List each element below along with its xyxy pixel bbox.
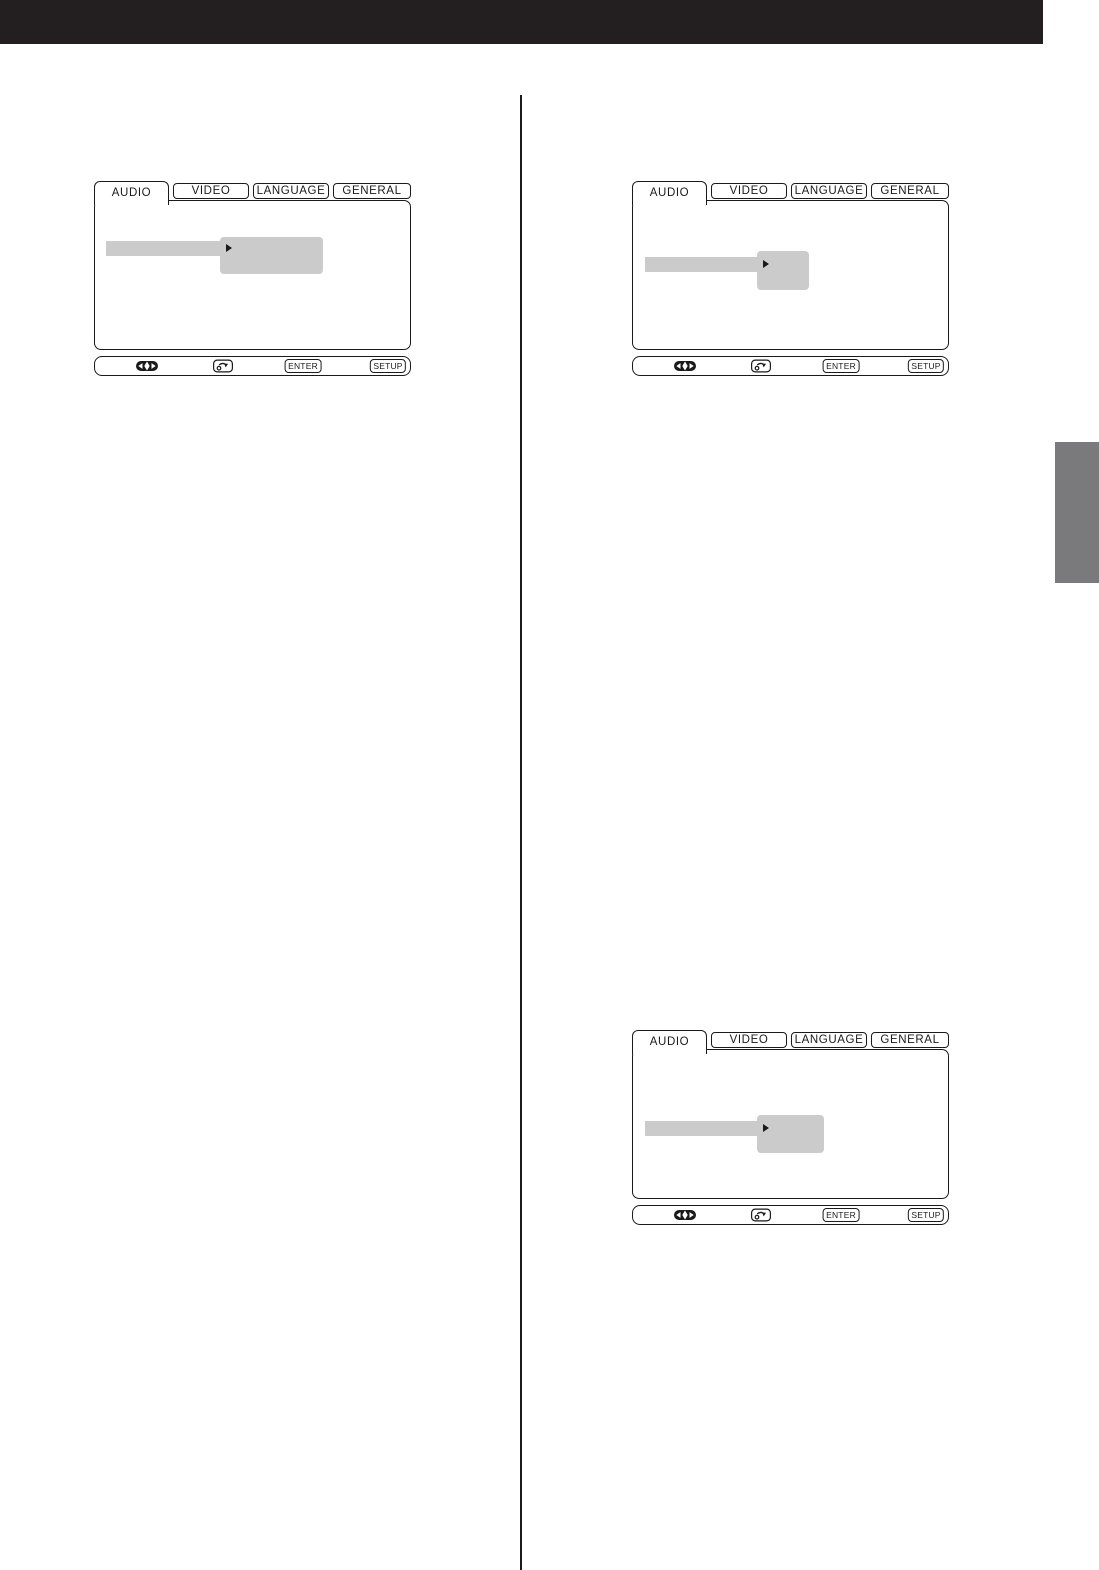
return-icon[interactable] xyxy=(751,1209,771,1222)
enter-button[interactable]: ENTER xyxy=(823,359,860,373)
tab-audio[interactable]: AUDIO xyxy=(632,181,707,205)
setup-menu-screenshot-3: VIDEO LANGUAGE GENERAL AUDIO ENTER xyxy=(632,1030,950,1226)
submenu-arrow-icon xyxy=(763,1124,769,1132)
setup-button[interactable]: SETUP xyxy=(370,359,406,373)
submenu-popup xyxy=(757,251,809,290)
column-divider xyxy=(520,95,522,1570)
four-way-arrow-pad-icon[interactable] xyxy=(674,1210,697,1221)
tab-video[interactable]: VIDEO xyxy=(711,183,787,199)
tab-video[interactable]: VIDEO xyxy=(711,1032,787,1048)
submenu-arrow-icon xyxy=(226,244,232,252)
setup-button[interactable]: SETUP xyxy=(908,1208,944,1222)
setup-menu-screenshot-2: VIDEO LANGUAGE GENERAL AUDIO ENTER xyxy=(632,181,950,377)
enter-button[interactable]: ENTER xyxy=(285,359,322,373)
tab-general[interactable]: GENERAL xyxy=(871,183,949,199)
return-icon[interactable] xyxy=(213,360,233,373)
menu-panel xyxy=(632,1049,949,1199)
submenu-arrow-icon xyxy=(763,260,769,268)
control-hint-bar: ENTER SETUP xyxy=(632,356,949,376)
control-hint-bar: ENTER SETUP xyxy=(94,356,411,376)
four-way-arrow-pad-icon[interactable] xyxy=(136,361,159,372)
page-edge-tab xyxy=(1055,442,1099,583)
manual-page: VIDEO LANGUAGE GENERAL AUDIO ENTER xyxy=(0,0,1099,1570)
tab-general[interactable]: GENERAL xyxy=(333,183,411,199)
control-hint-bar: ENTER SETUP xyxy=(632,1205,949,1225)
submenu-popup xyxy=(220,237,323,274)
submenu-popup xyxy=(757,1115,824,1153)
tab-language[interactable]: LANGUAGE xyxy=(791,183,867,199)
tab-audio[interactable]: AUDIO xyxy=(632,1030,707,1054)
tab-audio[interactable]: AUDIO xyxy=(94,181,169,205)
setup-button[interactable]: SETUP xyxy=(908,359,944,373)
four-way-arrow-pad-icon[interactable] xyxy=(674,361,697,372)
menu-panel xyxy=(94,200,411,350)
setup-menu-screenshot-1: VIDEO LANGUAGE GENERAL AUDIO ENTER xyxy=(94,181,412,377)
selected-menu-item-bar[interactable] xyxy=(106,241,224,256)
header-bar xyxy=(0,0,1043,44)
tab-general[interactable]: GENERAL xyxy=(871,1032,949,1048)
selected-menu-item-bar[interactable] xyxy=(645,1121,761,1136)
tab-video[interactable]: VIDEO xyxy=(173,183,249,199)
menu-panel xyxy=(632,200,949,350)
selected-menu-item-bar[interactable] xyxy=(645,257,761,272)
enter-button[interactable]: ENTER xyxy=(823,1208,860,1222)
return-icon[interactable] xyxy=(751,360,771,373)
tab-language[interactable]: LANGUAGE xyxy=(791,1032,867,1048)
tab-language[interactable]: LANGUAGE xyxy=(253,183,329,199)
